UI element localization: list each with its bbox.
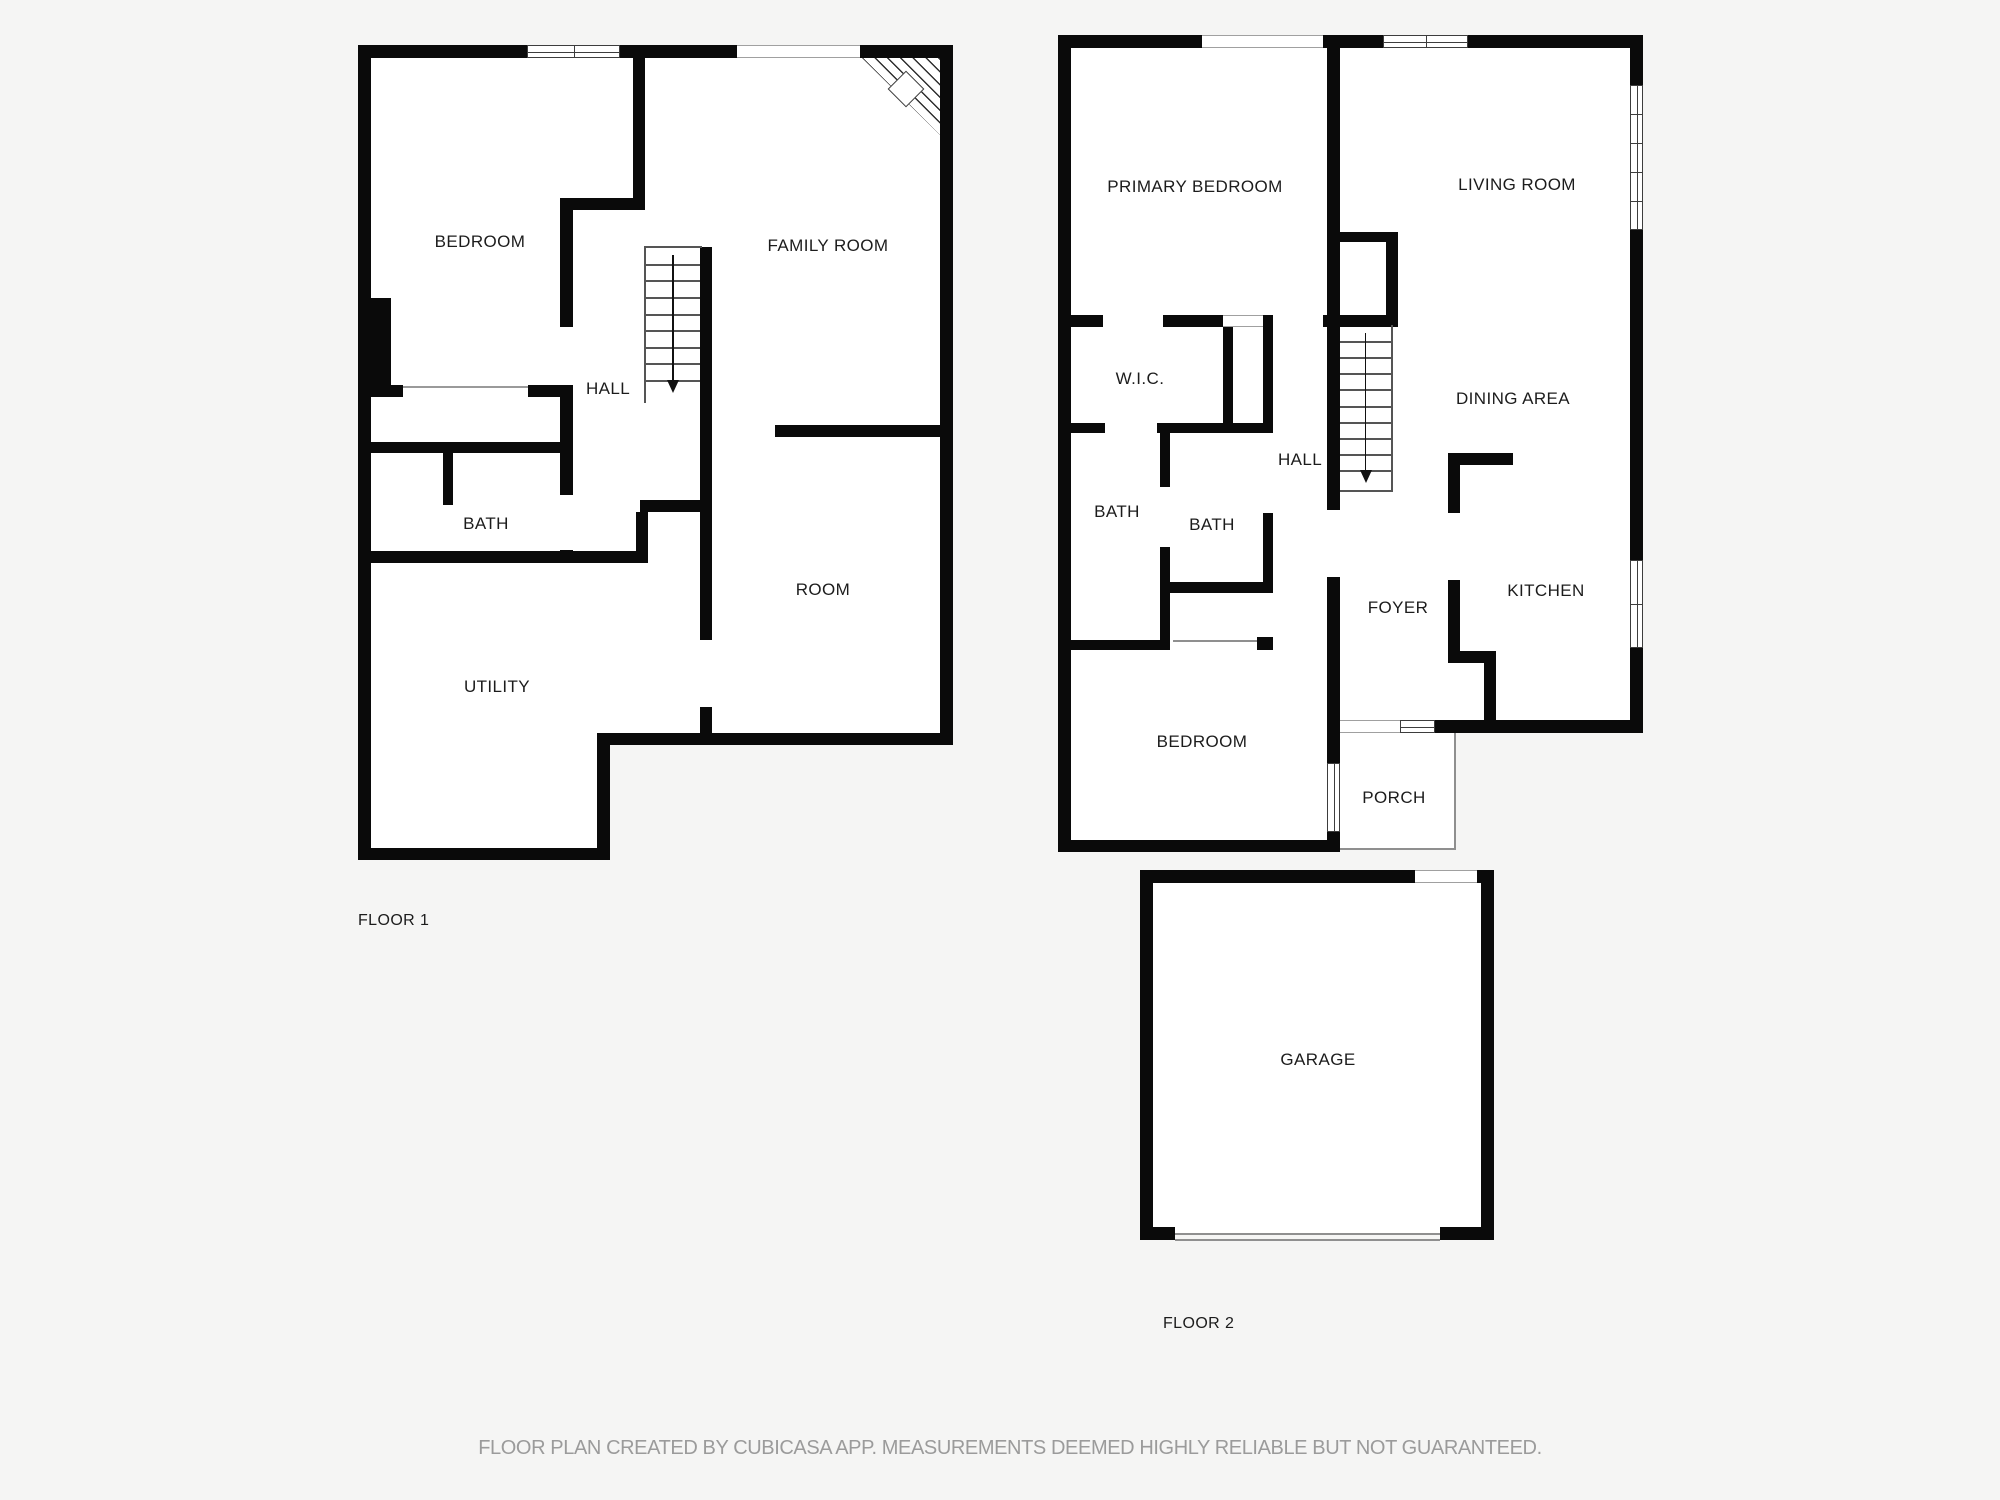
wall — [1323, 315, 1398, 327]
floor-1-label: FLOOR 1 — [358, 912, 429, 930]
stair-arrow-shaft — [672, 255, 674, 382]
detail-line — [644, 247, 646, 403]
wall — [940, 45, 953, 745]
room-label-room: ROOM — [796, 580, 850, 600]
floor-plan-canvas: FLOOR 1 FLOOR 2 FLOOR PLAN CREATED BY CU… — [0, 0, 2000, 1500]
wall — [1481, 870, 1494, 1240]
room-label-dining-area: DINING AREA — [1456, 389, 1570, 409]
wall — [358, 45, 527, 58]
wall — [1327, 832, 1340, 852]
room-label-bath: BATH — [1094, 502, 1140, 522]
detail-line — [1173, 640, 1257, 642]
window-divider — [574, 46, 575, 57]
wall — [560, 204, 573, 327]
wall — [1160, 582, 1273, 593]
room-label-garage: GARAGE — [1280, 1050, 1355, 1070]
opening-icon — [1202, 35, 1323, 48]
wall — [1327, 232, 1398, 242]
wall — [633, 45, 645, 210]
detail-line — [1454, 733, 1456, 850]
room-label-foyer: FOYER — [1368, 598, 1429, 618]
room-label-hall: HALL — [586, 379, 630, 399]
wall — [1448, 651, 1496, 663]
wall — [1630, 35, 1643, 85]
wall — [443, 453, 453, 505]
wall — [1327, 48, 1340, 510]
wall — [1630, 230, 1643, 560]
room-label-utility: UTILITY — [464, 677, 530, 697]
window-center-line — [1637, 85, 1638, 230]
room-label-primary-bedroom: PRIMARY BEDROOM — [1107, 177, 1282, 197]
wall — [358, 551, 648, 563]
wall — [1058, 35, 1071, 852]
wall — [1448, 453, 1460, 513]
detail-line — [1340, 848, 1456, 850]
room-label-family-room: FAMILY ROOM — [768, 236, 889, 256]
stair-arrow-shaft — [1365, 333, 1367, 472]
wall — [1257, 637, 1273, 650]
window-divider — [1631, 201, 1642, 202]
wall — [1058, 423, 1105, 433]
room-label-bath: BATH — [1189, 515, 1235, 535]
detail-line — [1391, 325, 1393, 492]
wall — [1323, 35, 1383, 48]
detail-line — [403, 386, 528, 388]
stair-down-arrow-icon — [667, 380, 679, 393]
wall — [597, 733, 610, 860]
window-divider — [1631, 143, 1642, 144]
opening-icon — [1223, 315, 1263, 327]
wall — [1263, 513, 1273, 593]
room-label-bath: BATH — [463, 514, 509, 534]
window-divider — [1426, 36, 1427, 47]
wall — [1148, 1227, 1175, 1240]
detail-line — [1175, 1239, 1440, 1241]
window-divider — [1631, 172, 1642, 173]
wall — [1484, 663, 1496, 733]
room-label-hall: HALL — [1278, 450, 1322, 470]
window-center-line — [1400, 727, 1435, 728]
disclaimer-text: FLOOR PLAN CREATED BY CUBICASA APP. MEAS… — [450, 1437, 1570, 1460]
wall — [1263, 327, 1273, 433]
wall — [1386, 242, 1398, 315]
wall — [1140, 870, 1415, 883]
wall — [1263, 315, 1273, 327]
window-center-line — [1334, 763, 1335, 832]
room-label-bedroom: BEDROOM — [1157, 732, 1248, 752]
wall — [1157, 423, 1273, 433]
wall — [1163, 315, 1223, 327]
wall — [1435, 720, 1643, 733]
wall — [1440, 1227, 1494, 1240]
stair-down-arrow-icon — [1360, 470, 1372, 483]
detail-line — [644, 246, 702, 248]
room-label-porch: PORCH — [1362, 788, 1425, 808]
detail-line — [1340, 490, 1393, 492]
wall — [636, 512, 648, 551]
wall — [602, 733, 953, 745]
wall — [1140, 870, 1153, 1240]
wall — [1058, 640, 1170, 650]
wall — [1160, 433, 1170, 487]
wall — [1058, 840, 1340, 852]
floor-area — [1065, 42, 1335, 845]
wall — [640, 500, 712, 512]
window-divider — [1631, 604, 1642, 605]
wall — [1062, 35, 1202, 48]
room-label-kitchen: KITCHEN — [1507, 581, 1584, 601]
wall — [560, 397, 573, 495]
wall — [528, 385, 573, 397]
wall — [371, 298, 391, 390]
wall — [358, 848, 610, 860]
opening-icon — [1340, 720, 1400, 733]
wall — [1223, 327, 1233, 423]
opening-icon — [1415, 870, 1477, 883]
room-label-w-i-c-: W.I.C. — [1116, 369, 1165, 389]
room-label-living-room: LIVING ROOM — [1458, 175, 1576, 195]
wall — [1468, 35, 1643, 48]
wall — [1327, 577, 1340, 763]
window-divider — [1631, 114, 1642, 115]
wall — [358, 385, 403, 397]
wall — [700, 707, 712, 745]
wall — [1058, 315, 1103, 327]
room-label-bedroom: BEDROOM — [435, 232, 526, 252]
wall — [1160, 547, 1170, 650]
detail-line — [1175, 1233, 1440, 1235]
wall — [775, 425, 953, 437]
wall — [358, 442, 572, 453]
wall — [700, 247, 712, 640]
floor-2-label: FLOOR 2 — [1163, 1315, 1234, 1333]
opening-icon — [737, 45, 860, 58]
